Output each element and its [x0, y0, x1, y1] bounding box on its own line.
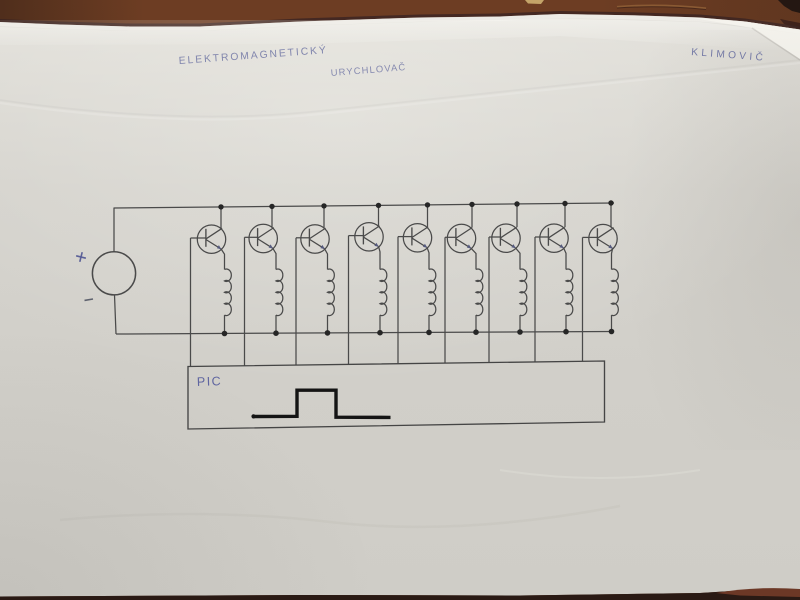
svg-text:PIC: PIC — [197, 374, 223, 389]
